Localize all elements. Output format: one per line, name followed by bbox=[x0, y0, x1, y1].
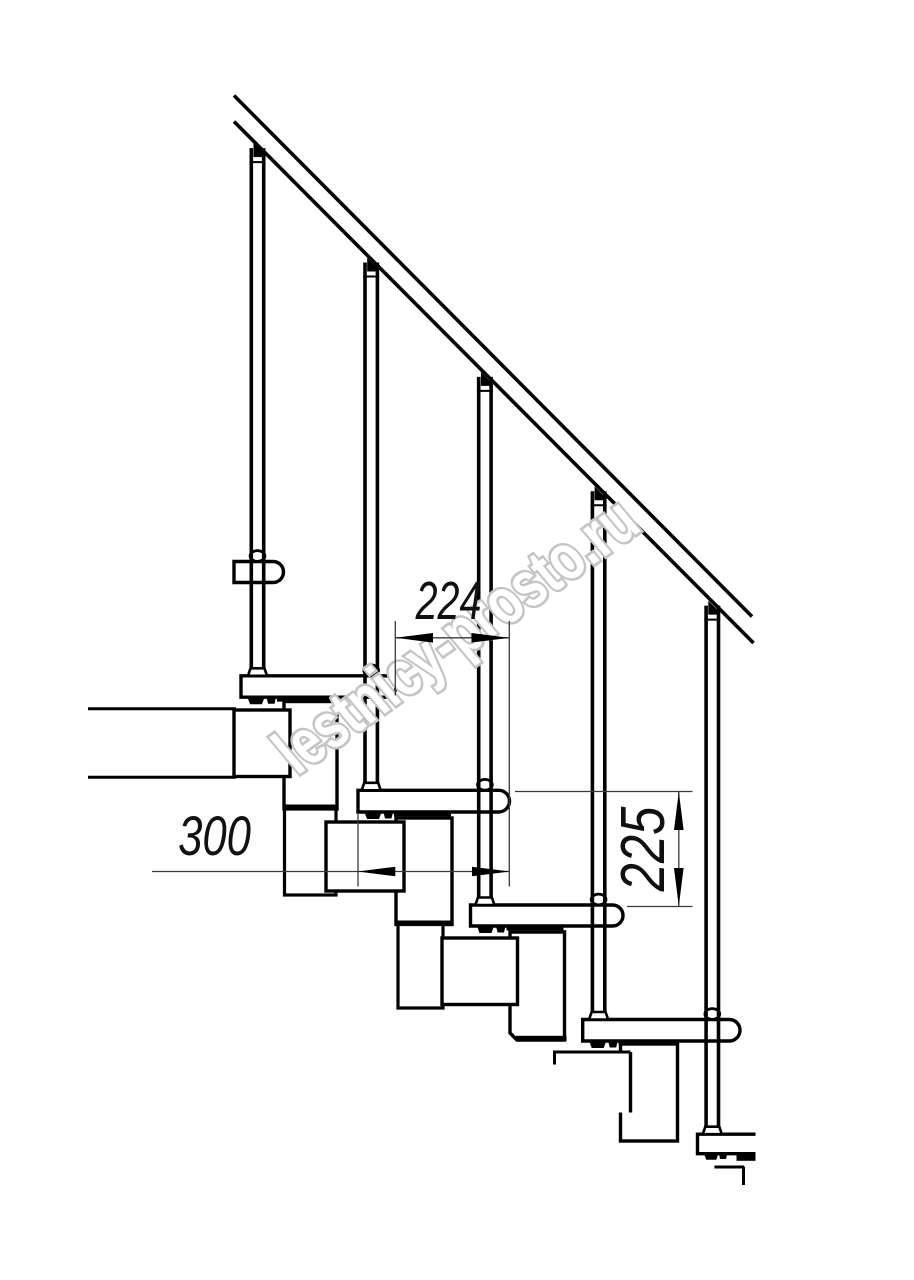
svg-text:300: 300 bbox=[178, 805, 251, 867]
svg-text:224: 224 bbox=[415, 571, 482, 632]
svg-text:225: 225 bbox=[609, 806, 678, 892]
